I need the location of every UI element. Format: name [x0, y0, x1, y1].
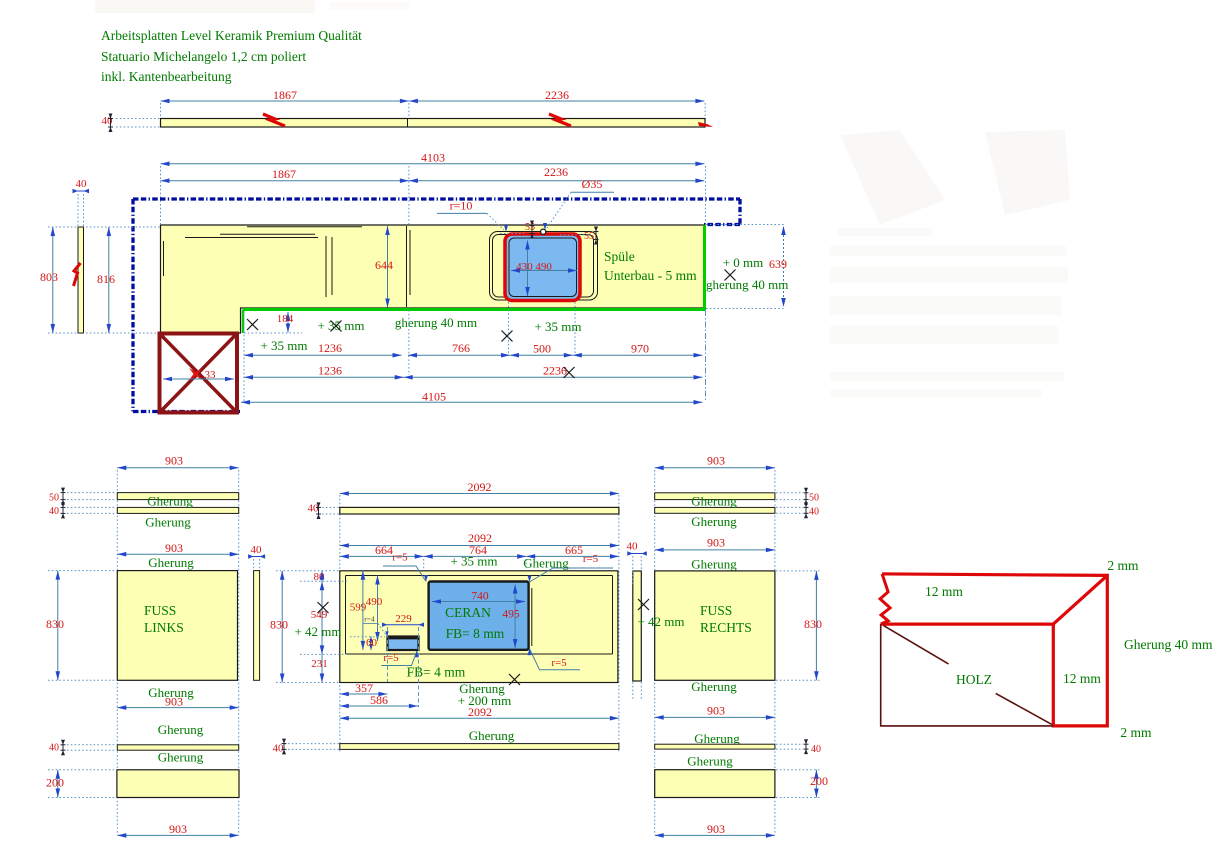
- svg-text:903: 903: [707, 822, 725, 836]
- svg-text:Ø35: Ø35: [582, 177, 603, 191]
- svg-text:2092: 2092: [468, 480, 492, 494]
- svg-text:Gherung: Gherung: [691, 514, 737, 529]
- svg-text:+ 42 mm: + 42 mm: [637, 614, 684, 629]
- svg-text:766: 766: [452, 341, 470, 355]
- svg-text:430 490: 430 490: [516, 261, 552, 273]
- svg-text:FB= 8 mm: FB= 8 mm: [446, 626, 505, 641]
- svg-text:200: 200: [46, 776, 64, 790]
- svg-text:40: 40: [809, 507, 819, 518]
- svg-text:Statuario Michelangelo 1,2 cm: Statuario Michelangelo 1,2 cm poliert: [101, 49, 306, 64]
- svg-text:12 mm: 12 mm: [925, 584, 963, 599]
- svg-text:830: 830: [804, 617, 822, 631]
- svg-text:FUSS: FUSS: [144, 603, 176, 618]
- svg-text:+ 0 mm: + 0 mm: [723, 255, 764, 270]
- svg-text:2236: 2236: [543, 364, 567, 378]
- svg-text:12 mm: 12 mm: [1063, 671, 1101, 686]
- svg-text:2 mm: 2 mm: [1120, 725, 1152, 740]
- svg-text:Arbeitsplatten Level Keramik P: Arbeitsplatten Level Keramik Premium Qua…: [101, 28, 362, 43]
- svg-text:Gherung 40 mm: Gherung 40 mm: [1124, 637, 1213, 652]
- svg-text:FB= 4 mm: FB= 4 mm: [407, 665, 466, 680]
- svg-text:gherung 40 mm: gherung 40 mm: [395, 315, 477, 330]
- svg-text:RECHTS: RECHTS: [700, 620, 752, 635]
- svg-text:Unterbau - 5 mm: Unterbau - 5 mm: [604, 268, 697, 283]
- svg-text:903: 903: [165, 695, 183, 709]
- svg-text:Gherung: Gherung: [147, 494, 193, 509]
- svg-text:4105: 4105: [422, 390, 446, 404]
- svg-text:40: 40: [49, 506, 59, 517]
- svg-text:gherung 40 mm: gherung 40 mm: [706, 277, 788, 292]
- svg-text:+ 35 mm: + 35 mm: [260, 338, 307, 353]
- svg-text:803: 803: [40, 270, 58, 284]
- svg-text:40: 40: [102, 115, 114, 127]
- svg-text:r=5: r=5: [551, 657, 567, 669]
- svg-text:644: 644: [375, 258, 393, 272]
- svg-text:1236: 1236: [318, 341, 342, 355]
- svg-text:Gherung: Gherung: [691, 557, 737, 572]
- svg-text:50: 50: [49, 493, 59, 504]
- svg-text:903: 903: [165, 541, 183, 555]
- svg-text:r=5: r=5: [383, 652, 399, 664]
- svg-text:1867: 1867: [273, 88, 297, 102]
- svg-text:+ 200 mm: + 200 mm: [458, 693, 512, 708]
- svg-text:2236: 2236: [545, 88, 569, 102]
- svg-text:500: 500: [533, 341, 551, 355]
- svg-text:740: 740: [471, 591, 489, 603]
- svg-text:200: 200: [810, 774, 828, 788]
- svg-text:LINKS: LINKS: [144, 620, 184, 635]
- svg-text:903: 903: [165, 454, 183, 468]
- svg-text:903: 903: [707, 454, 725, 468]
- svg-text:2236: 2236: [544, 165, 568, 179]
- svg-text:490: 490: [366, 596, 383, 608]
- svg-text:Gherung: Gherung: [158, 750, 204, 765]
- svg-text:903: 903: [707, 536, 725, 550]
- svg-text:+ 42 mm: + 42 mm: [294, 624, 341, 639]
- svg-text:40: 40: [273, 743, 285, 755]
- svg-text:FUSS: FUSS: [700, 603, 732, 618]
- svg-text:r=5: r=5: [392, 552, 408, 564]
- svg-text:40: 40: [251, 544, 263, 556]
- svg-text:599: 599: [350, 602, 367, 614]
- svg-text:Gherung: Gherung: [691, 679, 737, 694]
- svg-text:970: 970: [631, 341, 649, 355]
- svg-text:55: 55: [525, 222, 535, 233]
- svg-text:549: 549: [311, 609, 328, 621]
- svg-text:r=4: r=4: [364, 615, 375, 624]
- svg-text:r=5: r=5: [583, 553, 599, 565]
- svg-text:Gherung: Gherung: [145, 515, 191, 530]
- svg-text:Gherung: Gherung: [158, 722, 204, 737]
- svg-text:184: 184: [277, 313, 294, 325]
- svg-text:55: 55: [584, 231, 594, 242]
- svg-text:495: 495: [502, 609, 520, 621]
- svg-text:903: 903: [169, 822, 187, 836]
- svg-text:inkl. Kantenbearbeitung: inkl. Kantenbearbeitung: [101, 69, 232, 84]
- svg-text:2 mm: 2 mm: [1107, 558, 1139, 573]
- svg-text:60: 60: [366, 637, 378, 649]
- svg-text:639: 639: [769, 257, 787, 271]
- svg-text:+ 35 mm: + 35 mm: [534, 319, 581, 334]
- svg-text:40: 40: [49, 743, 59, 754]
- svg-text:Spüle: Spüle: [604, 249, 635, 264]
- svg-text:Gherung: Gherung: [687, 754, 733, 769]
- svg-text:HOLZ: HOLZ: [956, 672, 992, 687]
- svg-text:r=10: r=10: [450, 199, 473, 213]
- svg-text:816: 816: [97, 272, 115, 286]
- svg-text:40: 40: [811, 744, 821, 755]
- svg-text:4103: 4103: [421, 151, 445, 165]
- svg-text:586: 586: [370, 693, 388, 707]
- svg-text:664: 664: [375, 543, 393, 557]
- svg-text:229: 229: [395, 613, 412, 625]
- svg-text:1867: 1867: [272, 167, 296, 181]
- svg-text:50: 50: [809, 493, 819, 504]
- svg-text:830: 830: [270, 618, 288, 632]
- svg-text:903: 903: [707, 704, 725, 718]
- svg-text:Gherung: Gherung: [148, 555, 194, 570]
- svg-text:1236: 1236: [318, 364, 342, 378]
- svg-text:Gherung: Gherung: [469, 728, 515, 743]
- svg-text:40: 40: [76, 178, 88, 190]
- svg-text:CERAN: CERAN: [445, 605, 491, 620]
- svg-text:231: 231: [311, 658, 328, 670]
- svg-text:Gherung: Gherung: [691, 494, 737, 509]
- svg-text:830: 830: [46, 617, 64, 631]
- svg-text:40: 40: [627, 541, 639, 553]
- svg-text:+ 35 mm: + 35 mm: [450, 554, 497, 569]
